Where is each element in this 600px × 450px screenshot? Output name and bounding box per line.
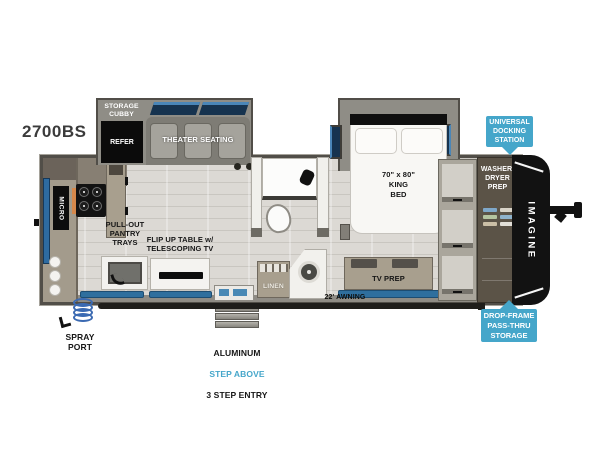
step-count-label: 3 STEP ENTRY: [182, 390, 292, 400]
slide-wall-end: [340, 224, 350, 240]
cupholder-icon: [234, 163, 241, 170]
step: [215, 313, 259, 320]
cooktop-icon: [76, 184, 106, 217]
plate-icon: [49, 270, 61, 282]
brand-graphic: IMAGINE: [526, 201, 537, 259]
burner-icon: [79, 201, 89, 211]
accessory-hitch-badge: ACCESSORY HITCH: [15, 181, 34, 265]
tv-slot-icon: [159, 272, 203, 279]
shelf-line: [482, 280, 513, 281]
step-material-label: ALUMINUM: [182, 348, 292, 358]
badge-pointer-up: [499, 300, 519, 310]
burner-icon: [92, 201, 102, 211]
refrigerator: REFER: [101, 121, 143, 163]
pantry-handle: [125, 207, 128, 215]
bathroom-wall: [251, 157, 262, 235]
burner-icon: [92, 187, 102, 197]
dresser-tray: [351, 259, 377, 268]
door-window: [233, 289, 247, 296]
microwave-label: MICRO: [58, 196, 65, 220]
rear-cabinet: [43, 158, 76, 180]
refrigerator-label: REFER: [110, 139, 134, 146]
floor-mat: [80, 291, 144, 298]
shelf-line: [482, 258, 513, 259]
plate-icon: [49, 256, 61, 268]
slide-window: [199, 102, 249, 115]
vanity-sink-icon: [298, 261, 320, 283]
storage-shelves: [438, 159, 477, 301]
linen-drawers: [260, 264, 288, 272]
dresser-tray: [392, 259, 418, 268]
step-feature-label: STEP ABOVE: [182, 369, 292, 379]
spray-port-label: SPRAY PORT: [56, 332, 104, 352]
linen-label: LINEN: [258, 283, 289, 291]
bathroom-wall: [317, 157, 329, 235]
shelf: [442, 164, 473, 202]
plate-icon: [49, 284, 61, 296]
shelf: [442, 256, 473, 294]
folded-clothes: [483, 222, 497, 226]
pantry-handle: [125, 177, 128, 185]
entry-door: [214, 285, 254, 301]
floorplan-canvas: 2700BS ACCESSORY HITCH MICRO PULL-OUT PA…: [0, 0, 600, 450]
slide-window: [150, 102, 200, 115]
tv-prep-label: TV PREP: [345, 275, 432, 284]
showerhead-icon: [298, 168, 315, 187]
model-number: 2700BS: [22, 122, 86, 142]
accessory-hitch-label: ACCESSORY HITCH: [20, 182, 29, 263]
step: [215, 321, 259, 328]
floor-mat: [149, 291, 212, 298]
shower: [262, 158, 317, 200]
theater-seating-slideout: STORAGE CUBBY REFER THEATER SEATING: [96, 98, 253, 165]
wall-end: [251, 228, 262, 237]
pillow: [355, 128, 397, 154]
spray-hose-coil: [73, 302, 93, 322]
wall-end: [317, 228, 329, 237]
awning-label: 22' AWNING: [310, 294, 380, 302]
microwave: MICRO: [53, 186, 69, 230]
flip-up-table-counter: [150, 258, 210, 290]
storage-cubby-label: STORAGE CUBBY: [98, 103, 145, 119]
spray-nozzle-icon: [59, 315, 72, 328]
pillow: [401, 128, 443, 154]
bedroom-window: [330, 125, 342, 159]
door-window: [219, 289, 229, 296]
awning-bar: [98, 303, 482, 309]
headboard: [350, 114, 447, 125]
linen-cabinet: LINEN: [257, 261, 290, 298]
hitch-coupler: [574, 202, 582, 218]
shelf: [442, 210, 473, 248]
badge-pointer-down: [501, 146, 519, 155]
flip-up-table-label: FLIP UP TABLE w/ TELESCOPING TV: [138, 236, 222, 254]
rear-kitchen-cabinets: MICRO: [43, 158, 78, 302]
front-cap: IMAGINE: [512, 155, 550, 305]
king-bed-label: 70" x 80" KING BED: [350, 170, 447, 199]
theater-seating-label: THEATER SEATING: [142, 136, 254, 145]
entry-steps-label: ALUMINUM STEP ABOVE 3 STEP ENTRY: [182, 338, 292, 411]
burner-icon: [79, 187, 89, 197]
rear-wall-window: [43, 178, 50, 264]
folded-clothes: [483, 208, 497, 212]
tv-prep-dresser: TV PREP: [344, 257, 433, 290]
folded-clothes: [483, 215, 497, 219]
drop-frame-storage-badge: DROP-FRAME PASS-THRU STORAGE: [481, 309, 537, 342]
kitchen-sink-counter: [101, 256, 148, 290]
universal-docking-badge: UNIVERSAL DOCKING STATION: [486, 116, 533, 147]
coil-ring: [73, 313, 93, 322]
